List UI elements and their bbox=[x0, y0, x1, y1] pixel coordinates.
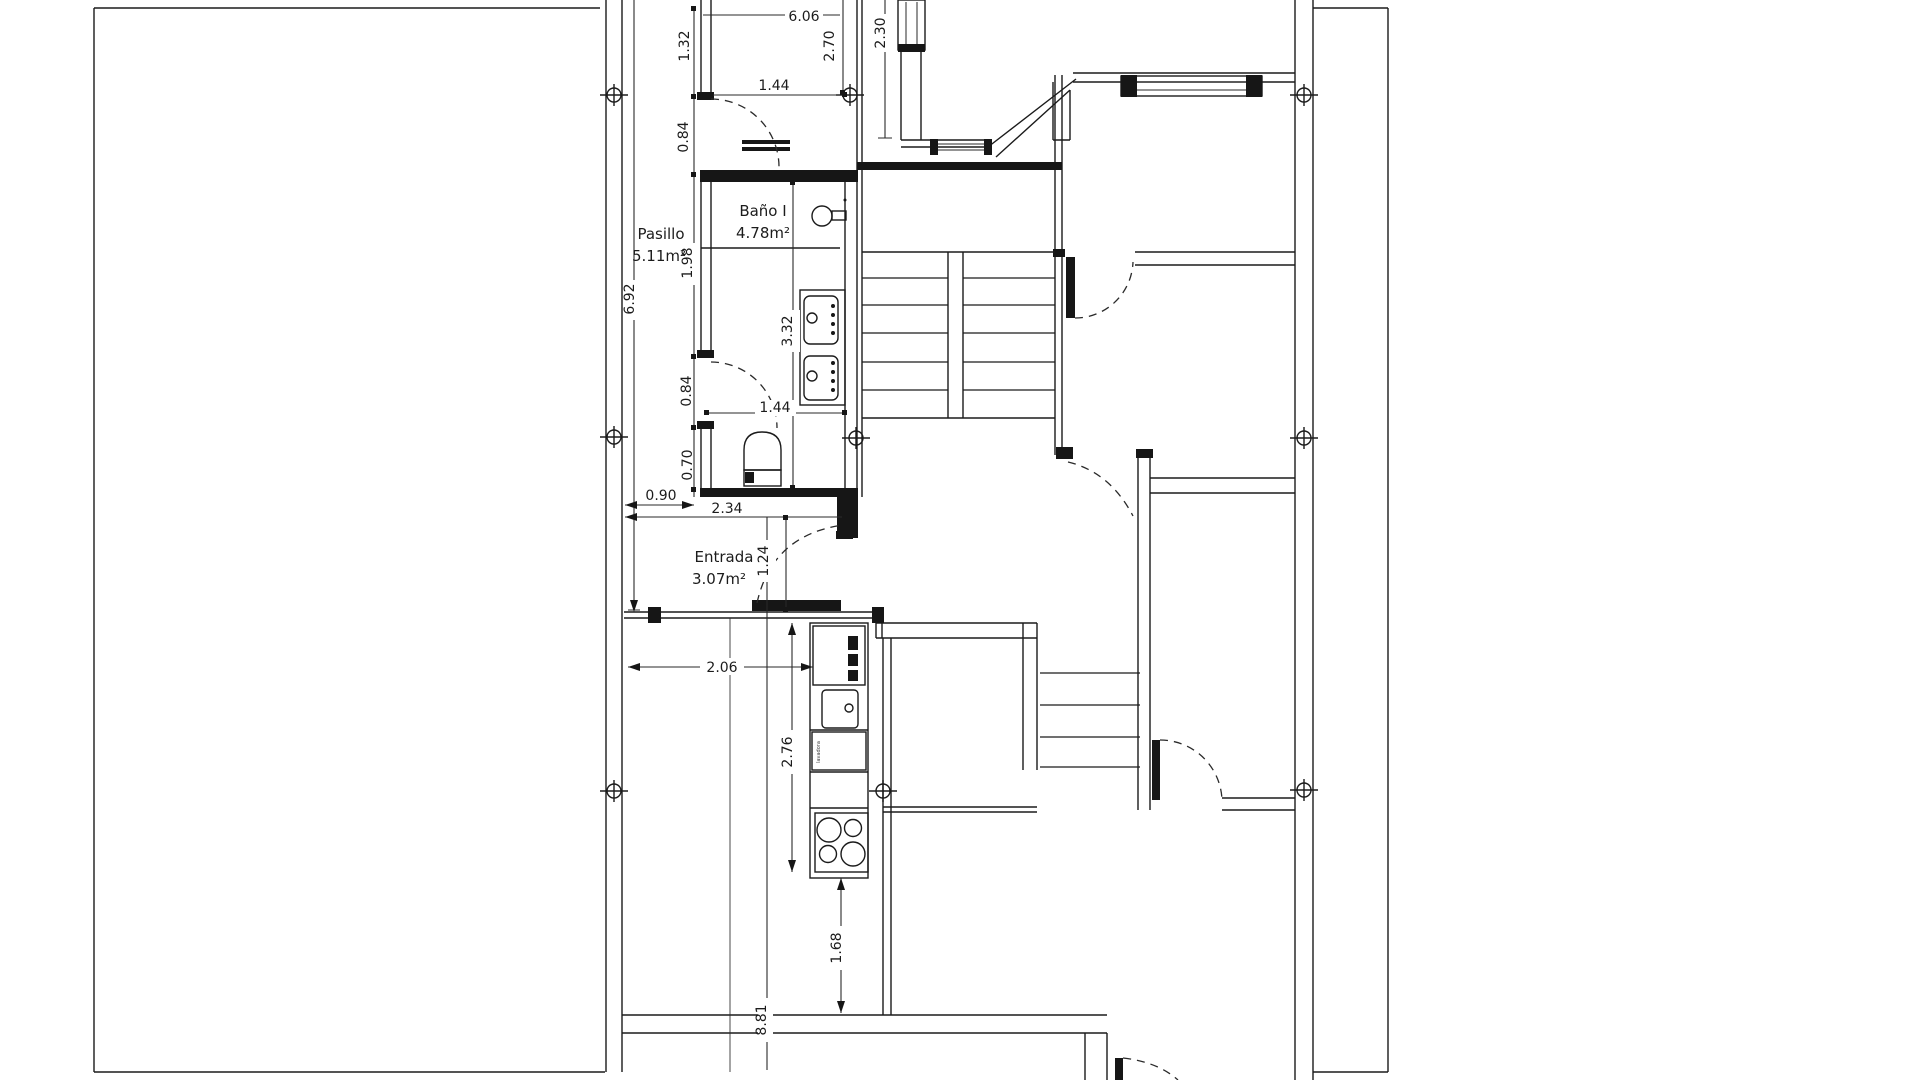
survey-marker-icon bbox=[600, 84, 628, 106]
door-stair-landing bbox=[1068, 462, 1133, 516]
dim-label-206: 2.06 bbox=[706, 660, 737, 676]
dim-label-881: 8.81 bbox=[754, 1004, 770, 1035]
dim-label-144-top: 1.44 bbox=[758, 78, 789, 94]
appliance-label: lavadora bbox=[816, 741, 822, 763]
dim-label-084-top: 0.84 bbox=[676, 121, 692, 152]
survey-marker-icon bbox=[1290, 84, 1318, 106]
survey-marker-icons bbox=[600, 84, 1318, 802]
room-area-pasillo: 5.11m² bbox=[632, 247, 686, 265]
survey-marker-icon bbox=[600, 426, 628, 448]
floor-plan-page: lavadora bbox=[0, 0, 1920, 1080]
vanity-sinks-icon bbox=[800, 290, 845, 405]
room-area-entrada: 3.07m² bbox=[692, 570, 746, 588]
toilet-icon bbox=[744, 432, 781, 486]
door-bano bbox=[711, 362, 777, 428]
wall-basin-icon bbox=[812, 199, 847, 227]
dim-label-070: 0.70 bbox=[680, 449, 696, 480]
doors bbox=[711, 99, 1222, 1080]
dim-label-276: 2.76 bbox=[780, 736, 796, 767]
dim-label-234: 2.34 bbox=[711, 501, 742, 517]
room-label-entrada: Entrada bbox=[695, 548, 754, 566]
appliance-box: lavadora bbox=[810, 732, 868, 808]
dim-label-198: 1.98 bbox=[680, 247, 696, 278]
window-top-right bbox=[1121, 75, 1262, 97]
thick-walls bbox=[648, 92, 1153, 623]
door-pasillo-top bbox=[711, 99, 779, 167]
door-bottom-room bbox=[1115, 1058, 1178, 1080]
room-label-bano: Baño I bbox=[739, 202, 786, 220]
threshold-step bbox=[742, 140, 790, 151]
plot-boundary bbox=[94, 0, 1388, 1080]
floor-plan-svg: lavadora bbox=[0, 0, 1920, 1080]
survey-marker-icon bbox=[1290, 427, 1318, 449]
room-area-bano: 4.78m² bbox=[736, 224, 790, 242]
dim-label-270: 2.70 bbox=[822, 30, 838, 61]
dim-label-692: 6.92 bbox=[622, 283, 638, 314]
dim-label-090: 0.90 bbox=[645, 488, 676, 504]
dim-label-084-mid: 0.84 bbox=[679, 375, 695, 406]
dim-label-332: 3.32 bbox=[780, 315, 796, 346]
dim-label-168: 1.68 bbox=[829, 932, 845, 963]
survey-marker-icon bbox=[600, 780, 628, 802]
staircase-lower-steps bbox=[1040, 673, 1140, 767]
dim-label-606: 6.06 bbox=[788, 9, 819, 25]
dim-label-144-mid: 1.44 bbox=[759, 400, 790, 416]
dim-label-132: 1.32 bbox=[677, 30, 693, 61]
dim-label-124: 1.24 bbox=[756, 545, 772, 576]
window-top-middle-vertical bbox=[898, 0, 925, 52]
door-top-right-room bbox=[1066, 257, 1133, 318]
survey-marker-icon bbox=[842, 427, 870, 449]
room-label-pasillo: Pasillo bbox=[637, 225, 684, 243]
stove-icon bbox=[815, 813, 868, 872]
dim-label-230: 2.30 bbox=[873, 17, 889, 48]
kitchen-fixtures: lavadora bbox=[810, 623, 868, 878]
door-middle-right-room bbox=[1152, 740, 1222, 800]
fridge-icon bbox=[813, 626, 865, 685]
staircase-main bbox=[862, 252, 1055, 418]
kitchen-sink-icon bbox=[810, 690, 868, 730]
